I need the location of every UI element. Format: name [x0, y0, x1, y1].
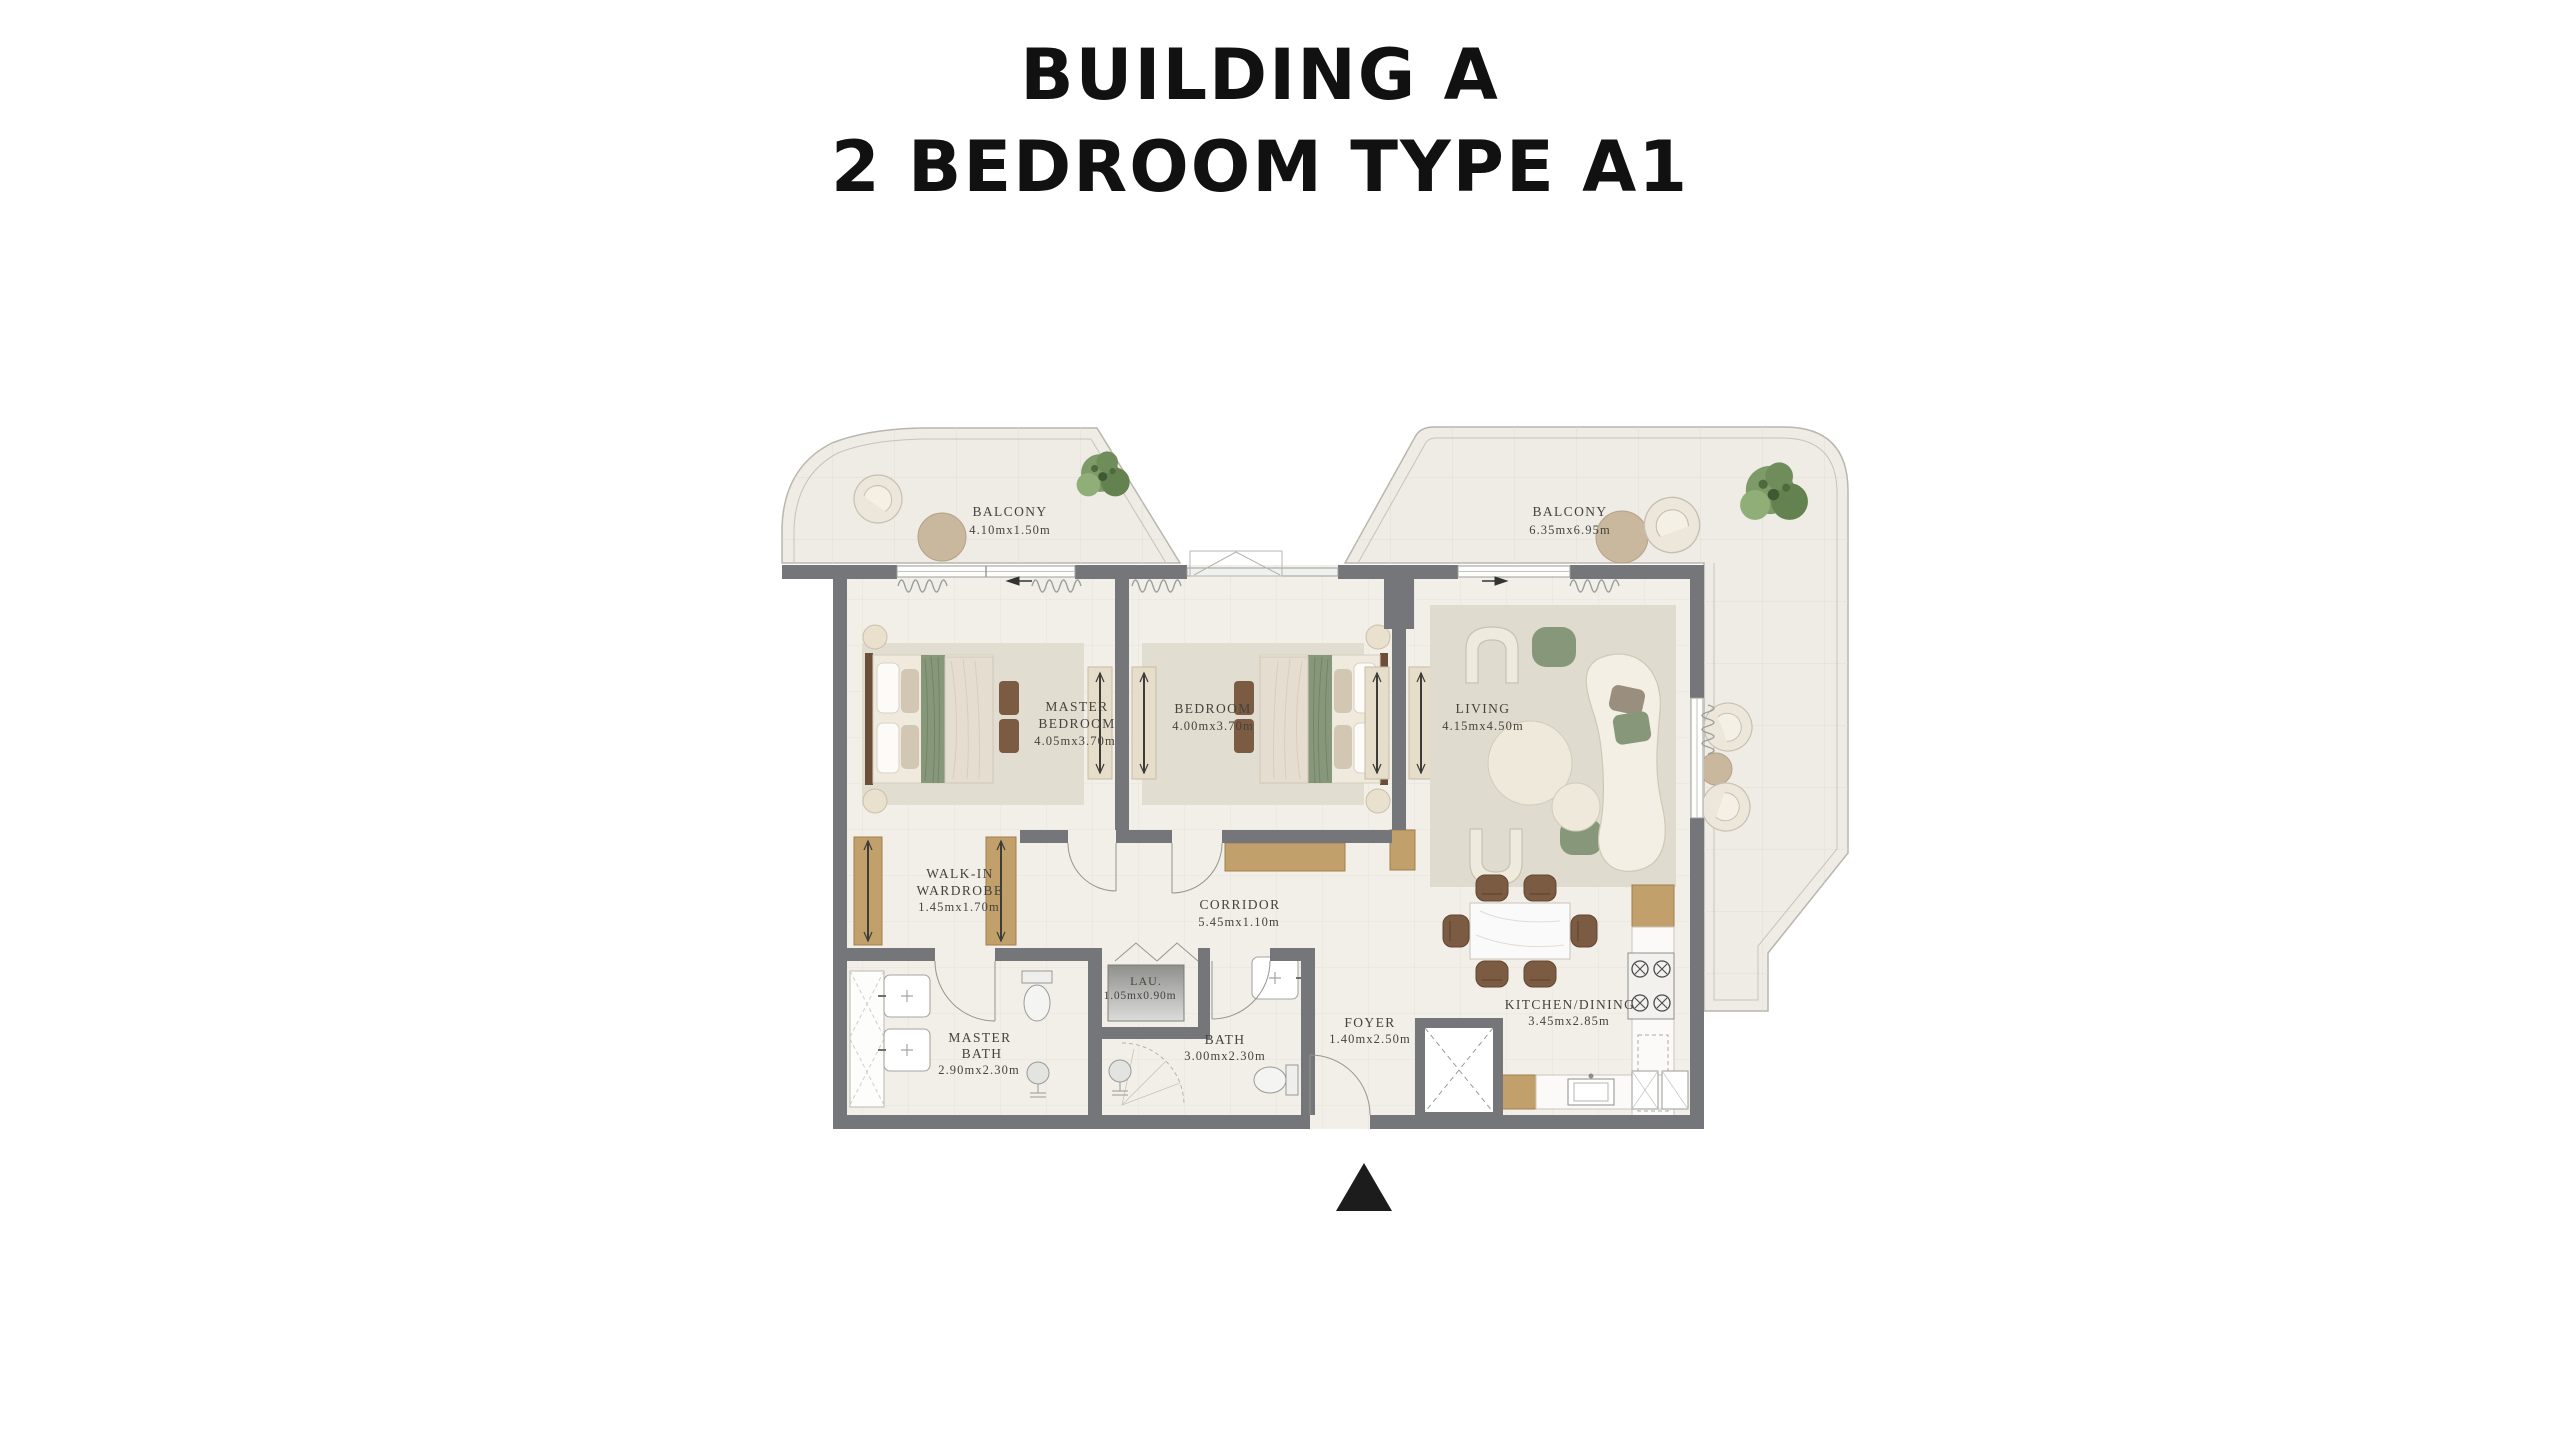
- plan-title: BUILDING A 2 BEDROOM TYPE A1: [0, 30, 2520, 202]
- floor-plan: BALCONY 4.10mx1.50m BALCONY 6.35mx6.95m …: [770, 415, 1990, 1215]
- toilet-icon: [1022, 971, 1052, 1021]
- room-label: MASTER: [948, 1030, 1011, 1045]
- side-table-icon: [918, 513, 966, 561]
- room-dims: 3.00mx2.30m: [1184, 1049, 1266, 1063]
- toilet-icon: [1254, 1065, 1298, 1095]
- room-dims: 4.10mx1.50m: [969, 523, 1051, 537]
- room-label: LIVING: [1456, 701, 1511, 716]
- room-label: KITCHEN/DINING: [1505, 997, 1636, 1012]
- chair-icon: [1524, 875, 1556, 901]
- room-dims: 5.45mx1.10m: [1198, 915, 1280, 929]
- title-line-1: BUILDING A: [0, 40, 2520, 110]
- chair-icon: [1443, 915, 1469, 947]
- room-label: BEDROOM: [1038, 716, 1115, 731]
- room-label: BALCONY: [972, 504, 1047, 519]
- dining-table-icon: [1470, 903, 1570, 959]
- room-dims: 4.15mx4.50m: [1442, 719, 1524, 733]
- counter-wood: [1632, 885, 1674, 927]
- room-dims: 1.05mx0.90m: [1104, 990, 1177, 1002]
- room-dims: 4.05mx3.70m: [1034, 734, 1116, 748]
- living-furniture: [1430, 605, 1676, 887]
- page: BUILDING A 2 BEDROOM TYPE A1: [0, 0, 2560, 1440]
- coffee-table-icon: [1552, 783, 1600, 831]
- title-line-2: 2 BEDROOM TYPE A1: [0, 132, 2520, 202]
- room-dims: 2.90mx2.30m: [938, 1063, 1020, 1077]
- room-label: CORRIDOR: [1200, 897, 1281, 912]
- north-arrow-icon: [1336, 1163, 1392, 1211]
- pillow: [1612, 710, 1652, 745]
- room-label: WARDROBE: [917, 883, 1004, 898]
- sink-icon: [1252, 957, 1304, 999]
- room-dims: 4.00mx3.70m: [1172, 719, 1254, 733]
- room-label: BATH: [1205, 1032, 1246, 1047]
- room-label: WALK-IN: [926, 866, 994, 881]
- chair-icon: [1476, 875, 1508, 901]
- chair-icon: [1571, 915, 1597, 947]
- room-label: LAU.: [1130, 974, 1162, 988]
- room-dims: 3.45mx2.85m: [1528, 1014, 1610, 1028]
- chair-icon: [1524, 961, 1556, 987]
- room-dims: 1.45mx1.70m: [918, 900, 1000, 914]
- room-label: MASTER: [1045, 699, 1108, 714]
- pouf-icon: [1532, 627, 1576, 667]
- sink-icon: [878, 1029, 930, 1071]
- chair-icon: [1476, 961, 1508, 987]
- sink-icon: [878, 975, 930, 1017]
- room-dims: 1.40mx2.50m: [1329, 1032, 1411, 1046]
- room-label: BEDROOM: [1174, 701, 1251, 716]
- shower-screen: [850, 971, 884, 1107]
- room-label: BALCONY: [1532, 504, 1607, 519]
- balcony-left-area: [782, 428, 1180, 563]
- side-table-icon: [1700, 753, 1732, 785]
- elevator: [1420, 1023, 1498, 1117]
- room-label: FOYER: [1344, 1015, 1395, 1030]
- room-dims: 6.35mx6.95m: [1529, 523, 1611, 537]
- room-label: BATH: [962, 1046, 1003, 1061]
